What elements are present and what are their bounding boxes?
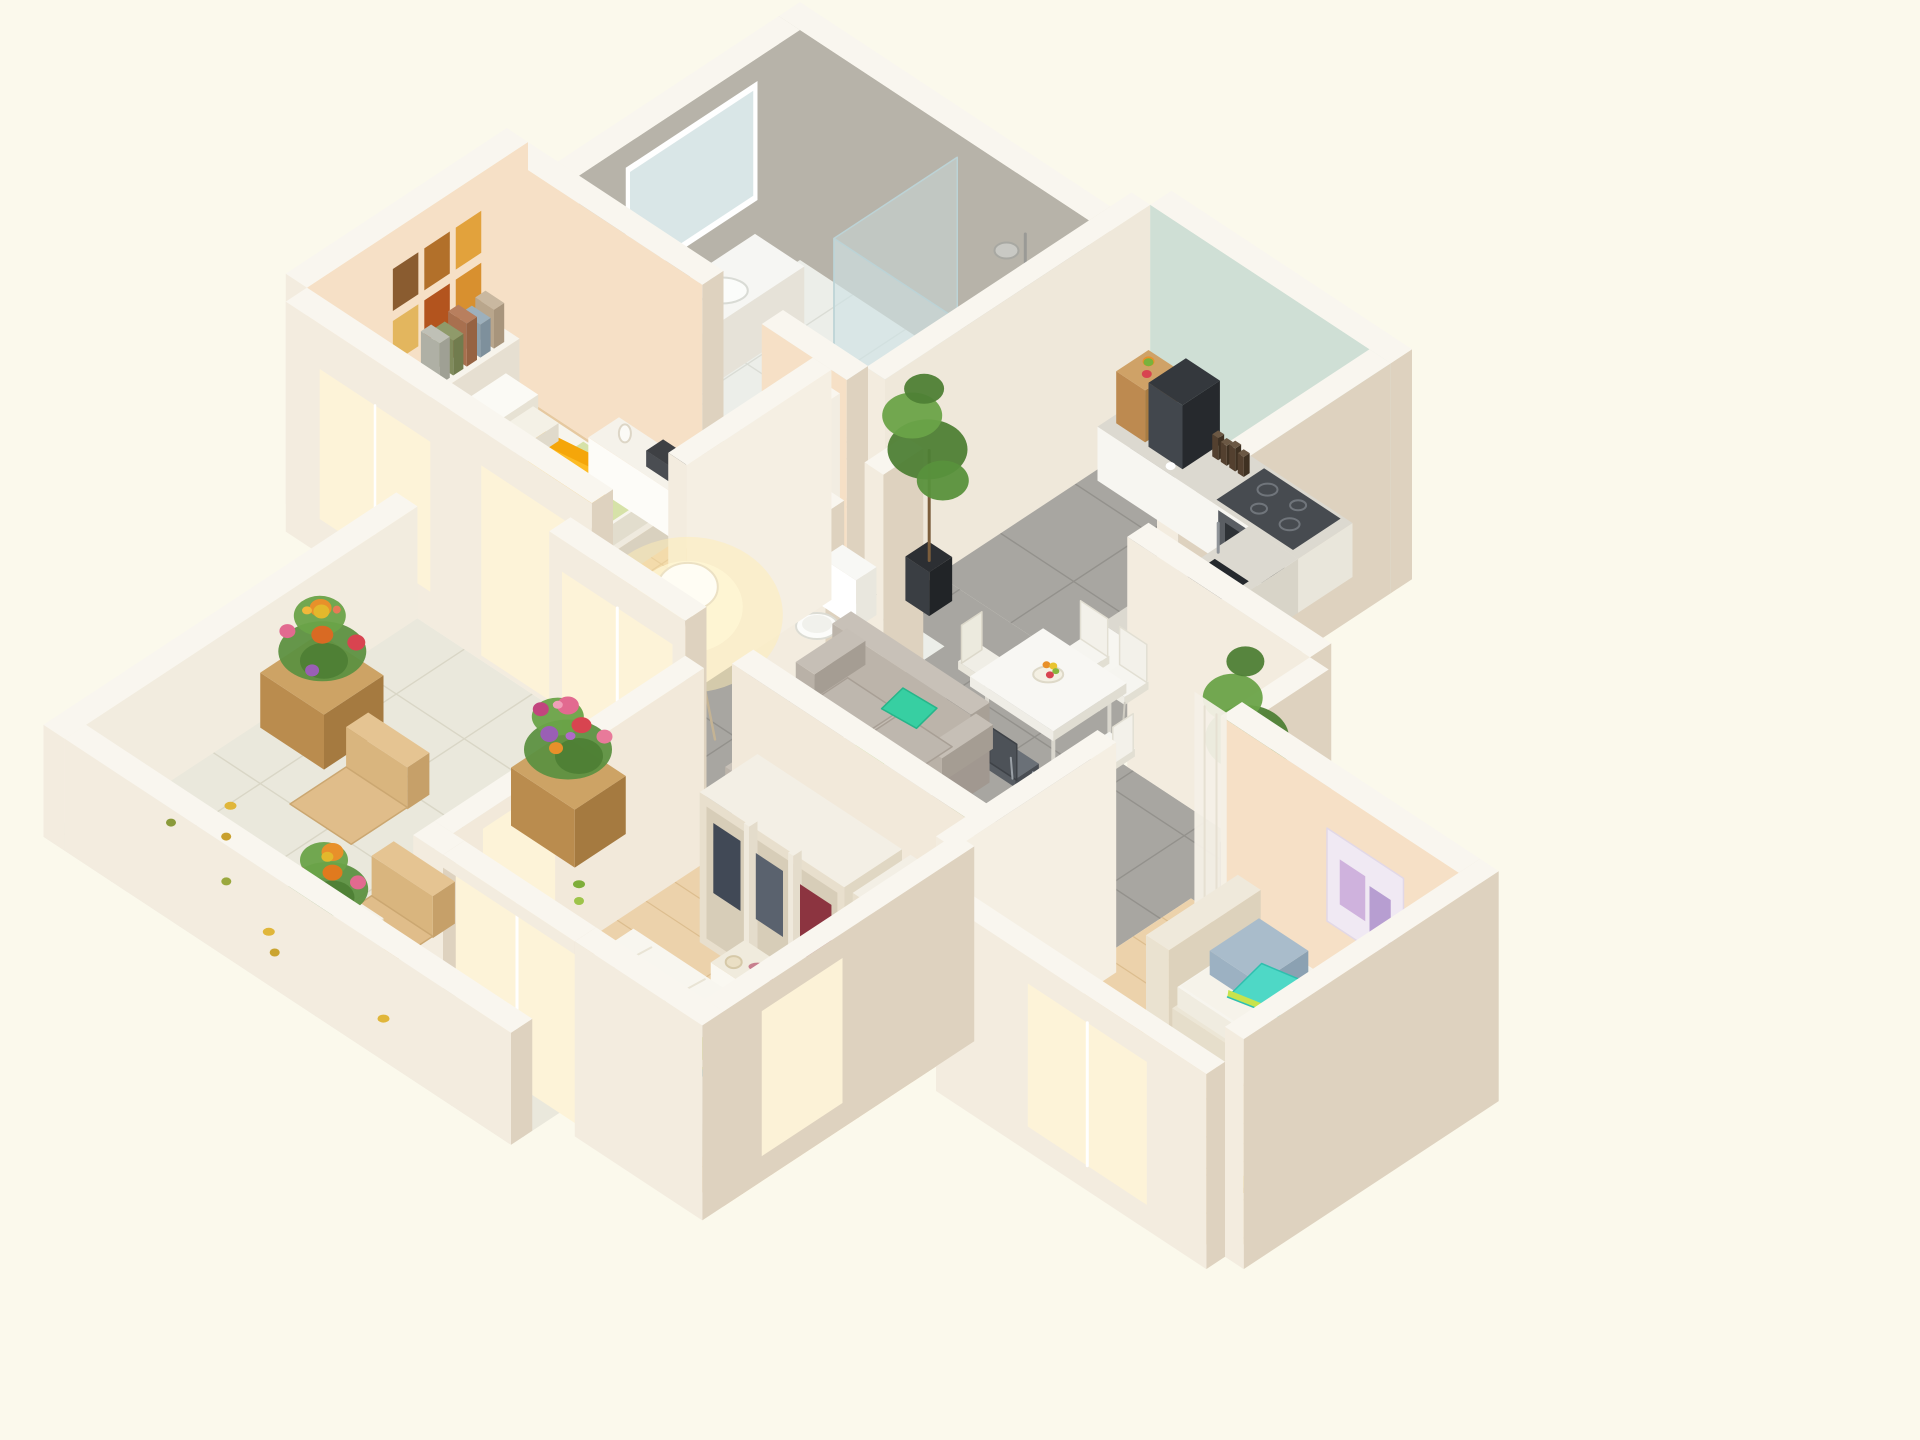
flower (302, 606, 312, 614)
floor-plan-stage (0, 0, 1920, 1440)
potted-plant (1226, 646, 1264, 676)
flower (313, 605, 329, 619)
planter-foliage (555, 738, 603, 774)
vase (619, 424, 631, 442)
spice-jar (1238, 449, 1250, 477)
flower (311, 626, 333, 644)
toilet-seat (802, 615, 832, 633)
flower (572, 717, 592, 733)
flower (553, 701, 563, 709)
flower (566, 732, 576, 740)
groceries-fruit (1142, 370, 1152, 378)
fruit (1052, 668, 1059, 674)
flower (279, 624, 295, 638)
fallen-leaf (270, 949, 280, 957)
coffee-cup (1166, 462, 1176, 470)
flower (333, 606, 341, 614)
fallen-leaf (378, 1015, 390, 1023)
sun-hat (726, 956, 742, 968)
bamboo-plant (917, 461, 969, 501)
fallen-leaf (573, 880, 585, 888)
fallen-leaf (263, 928, 275, 936)
bamboo-plant (904, 374, 944, 404)
flower (323, 865, 343, 881)
flower (549, 742, 563, 754)
fallen-leaf (225, 802, 237, 810)
fruit (1043, 661, 1051, 668)
flower (350, 875, 366, 889)
flower (347, 635, 365, 651)
flower (533, 702, 549, 716)
fallen-leaf (574, 897, 584, 905)
fallen-leaf (166, 819, 176, 827)
flower (540, 726, 558, 742)
fallen-leaf (221, 833, 231, 841)
groceries-greens (1144, 358, 1154, 366)
floor-plan-rendering (0, 0, 1920, 1440)
flower (321, 852, 333, 862)
flower (597, 730, 613, 744)
flower (305, 664, 319, 676)
fallen-leaf (221, 877, 231, 885)
shower-head (995, 243, 1019, 259)
